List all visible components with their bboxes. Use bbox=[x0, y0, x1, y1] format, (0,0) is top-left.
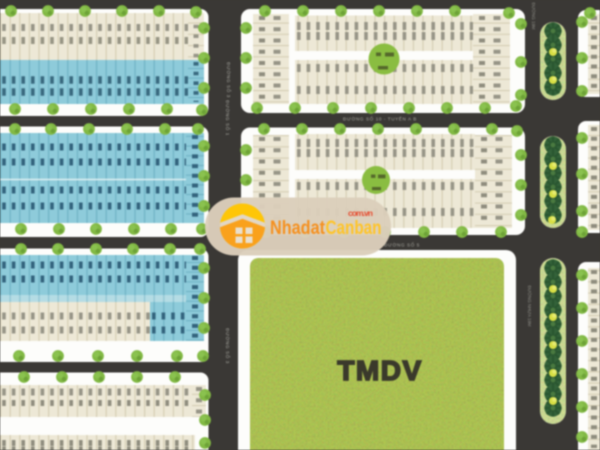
svg-text:ĐƯỜNG NHỰA 19M: ĐƯỜNG NHỰA 19M bbox=[527, 285, 532, 326]
svg-text:com.vn: com.vn bbox=[348, 208, 373, 218]
svg-text:ĐƯỜNG SỐ 10 - TUYẾN A B: ĐƯỜNG SỐ 10 - TUYẾN A B bbox=[343, 116, 417, 122]
svg-text:ĐƯỜNG SỐ 1: ĐƯỜNG SỐ 1 bbox=[225, 100, 231, 136]
svg-text:ĐƯỜNG SỐ 3: ĐƯỜNG SỐ 3 bbox=[226, 62, 232, 98]
svg-text:ĐƯỜNG SỐ 3: ĐƯỜNG SỐ 3 bbox=[225, 328, 231, 364]
svg-text:ĐƯỜNG SỐ 5: ĐƯỜNG SỐ 5 bbox=[384, 242, 420, 248]
svg-text:Nhadat: Nhadat bbox=[270, 218, 326, 239]
svg-text:Canban: Canban bbox=[326, 218, 382, 239]
svg-text:ĐƯỜNG 19M: ĐƯỜNG 19M bbox=[531, 2, 536, 29]
svg-text:TMDV: TMDV bbox=[337, 355, 422, 386]
